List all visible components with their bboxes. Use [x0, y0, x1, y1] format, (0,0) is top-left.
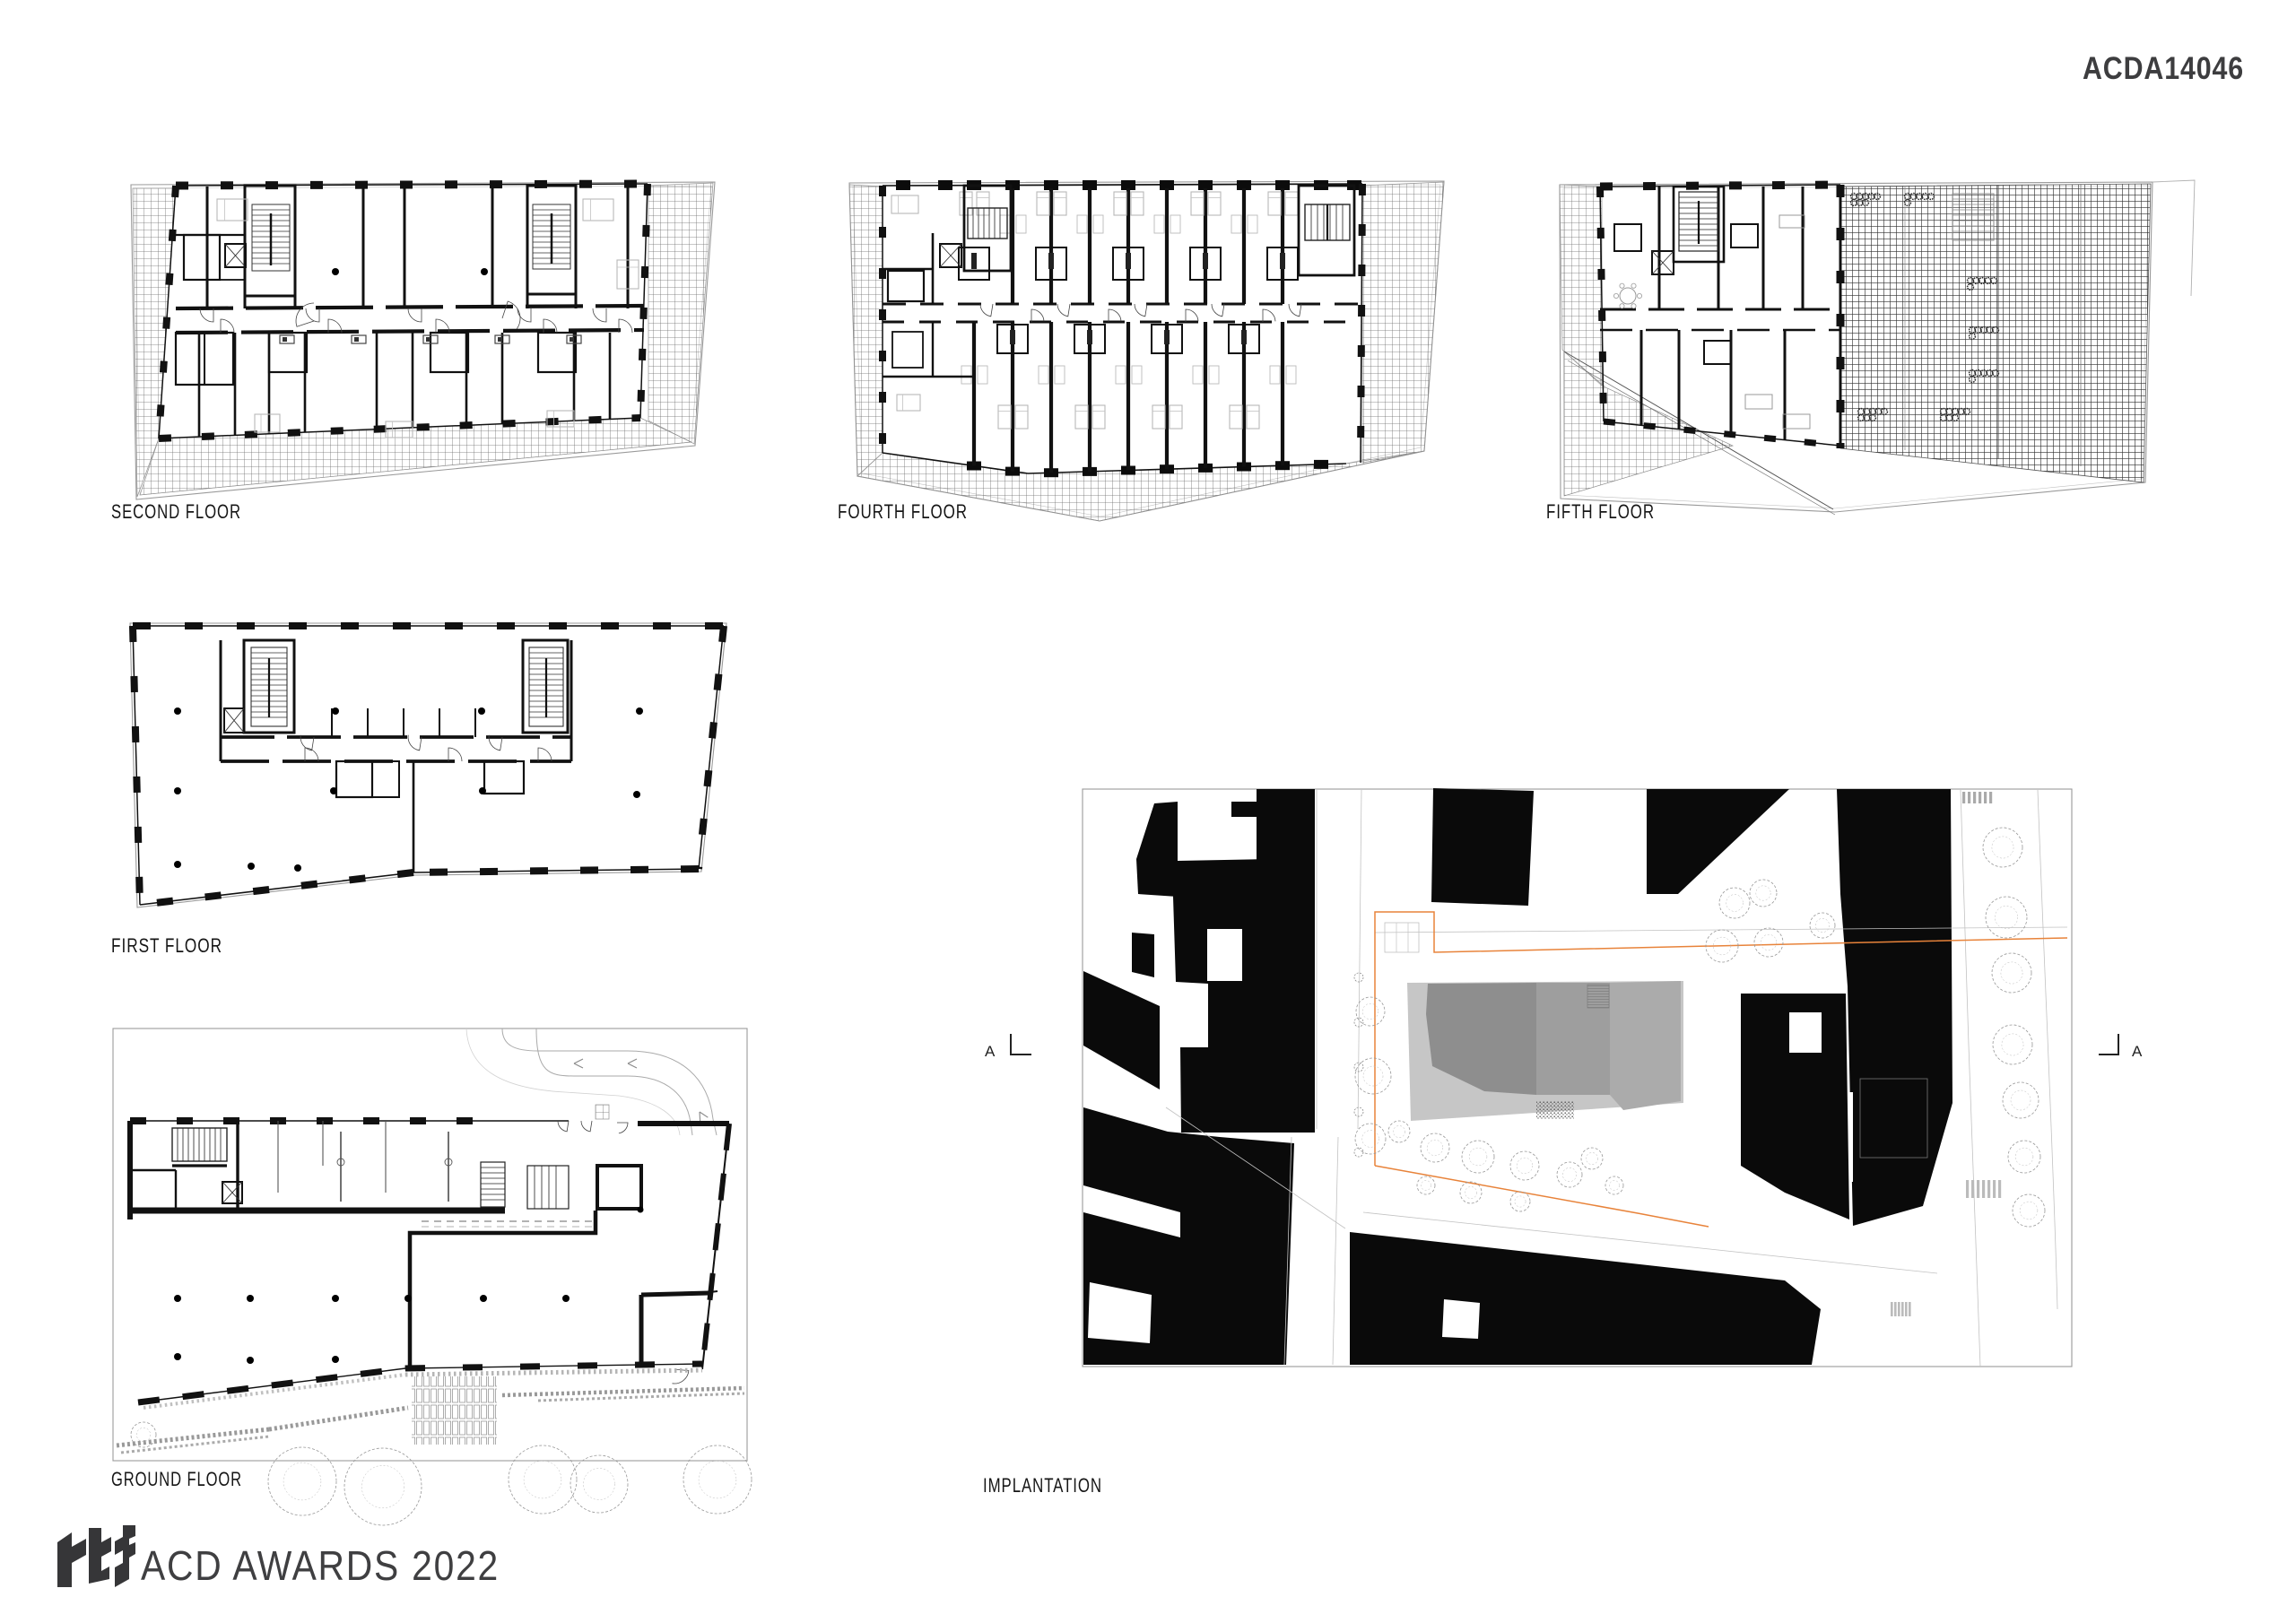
svg-text:IMPLANTATION: IMPLANTATION	[983, 1474, 1102, 1497]
svg-text:ACDA14046: ACDA14046	[2083, 51, 2244, 86]
svg-text:ACD AWARDS 2022: ACD AWARDS 2022	[141, 1542, 500, 1589]
svg-text:A: A	[985, 1043, 996, 1060]
svg-text:FOURTH FLOOR: FOURTH FLOOR	[838, 500, 968, 523]
svg-text:SECOND FLOOR: SECOND FLOOR	[111, 500, 241, 523]
svg-text:A: A	[2132, 1043, 2143, 1060]
svg-text:GROUND FLOOR: GROUND FLOOR	[111, 1468, 242, 1490]
svg-text:FIRST FLOOR: FIRST FLOOR	[111, 934, 222, 957]
svg-text:FIFTH FLOOR: FIFTH FLOOR	[1546, 500, 1655, 523]
